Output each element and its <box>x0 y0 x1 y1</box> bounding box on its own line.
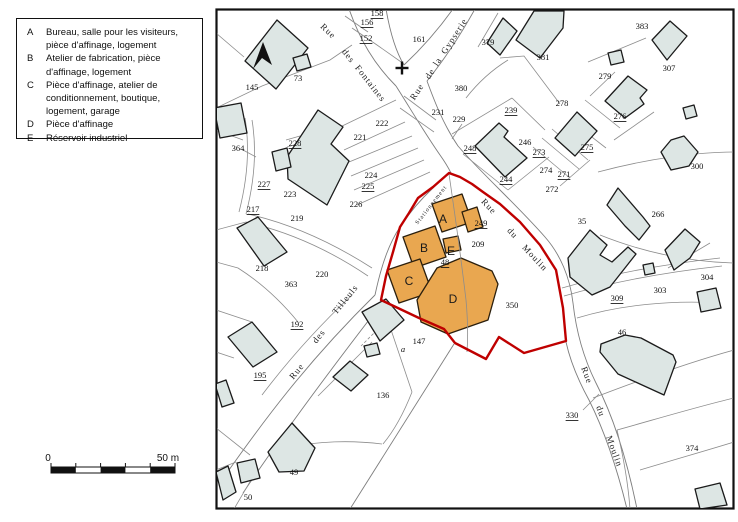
parcel-number: 222 <box>376 118 389 128</box>
parcel-number: 246 <box>519 137 532 147</box>
parcel-number: 217 <box>247 204 260 214</box>
parcel-number: 374 <box>686 443 700 453</box>
parcel-number: 49 <box>290 467 299 477</box>
legend-label: Bureau, salle pour les visiteurs, pièce … <box>46 26 196 52</box>
parcel-number: 229 <box>453 114 466 124</box>
parcel-number: 350 <box>506 300 519 310</box>
parcel-number: 248 <box>464 143 477 153</box>
legend-label: Pièce d'affinage <box>46 118 196 131</box>
parcel-number: 220 <box>316 269 329 279</box>
parcel-number: 383 <box>636 21 649 31</box>
parcel-number: 303 <box>654 285 667 295</box>
parcel-number: 279 <box>599 71 612 81</box>
parcel-number: 239 <box>505 105 518 115</box>
building-letter: E <box>447 244 455 258</box>
parcel-number: 225 <box>362 181 375 191</box>
legend-key: C <box>27 79 46 119</box>
parcel-number: 147 <box>413 336 426 346</box>
parcel-number: 380 <box>455 83 468 93</box>
parcel-number: 192 <box>291 319 304 329</box>
legend-key: A <box>27 26 46 52</box>
parcel-number: 224 <box>365 170 379 180</box>
parcel-number: 266 <box>652 209 665 219</box>
parcel-number: 272 <box>546 184 559 194</box>
parcel-number: 223 <box>284 189 297 199</box>
legend-item-a: A Bureau, salle pour les visiteurs, pièc… <box>27 26 196 52</box>
parcel-number: 73 <box>294 73 303 83</box>
parcel-number: 364 <box>232 143 246 153</box>
legend-item-e: E Réservoir industriel <box>27 132 196 145</box>
scale-bar: 0 50 m <box>45 453 179 473</box>
parcel-number: 309 <box>611 293 624 303</box>
parcel-number: 152 <box>360 33 373 43</box>
building-letter: B <box>420 241 428 255</box>
parcel-number: 228 <box>289 138 302 148</box>
parcel-number: 271 <box>558 169 571 179</box>
building-letter: A <box>439 212 447 226</box>
parcel-number: 226 <box>350 199 363 209</box>
legend-key: E <box>27 132 46 145</box>
parcel-number: 304 <box>701 272 715 282</box>
parcel-number: 273 <box>533 147 546 157</box>
cadastral-map-page: RuedesFontainesRuedelaGypserieRueduMouli… <box>0 0 738 522</box>
building-letter: D <box>449 292 458 306</box>
parcel-number: 278 <box>556 98 569 108</box>
parcel-number: 276 <box>614 111 627 121</box>
parcel-number: 244 <box>500 174 514 184</box>
parcel-number: 249 <box>475 218 488 228</box>
parcel-number: 50 <box>244 492 253 502</box>
parcel-number: 46 <box>618 327 627 337</box>
building-letter: C <box>405 274 414 288</box>
parcel-number: 307 <box>663 63 676 73</box>
legend-key: D <box>27 118 46 131</box>
parcel-number: 48 <box>441 257 450 267</box>
legend-item-c: C Pièce d'affinage, atelier de condition… <box>27 79 196 119</box>
parcel-number: 145 <box>246 82 259 92</box>
parcel-number: 274 <box>540 165 554 175</box>
parcel-number: 35 <box>578 216 587 226</box>
parcel-number: 156 <box>361 17 374 27</box>
legend-item-b: B Atelier de fabrication, pièce d'affina… <box>27 52 196 78</box>
parcel-number: 300 <box>691 161 704 171</box>
parcel-number: 330 <box>566 410 579 420</box>
parcel-number: 221 <box>354 132 367 142</box>
parcel-number: 363 <box>285 279 298 289</box>
parcel-number: a <box>401 344 405 354</box>
legend-item-d: D Pièce d'affinage <box>27 118 196 131</box>
parcel-number: 219 <box>291 213 304 223</box>
parcel-number: 218 <box>256 263 269 273</box>
parcel-number: 231 <box>432 107 445 117</box>
legend-label: Réservoir industriel <box>46 132 196 145</box>
parcel-number: 381 <box>537 52 550 62</box>
legend-label: Pièce d'affinage, atelier de conditionne… <box>46 79 196 119</box>
parcel-number: 209 <box>472 239 485 249</box>
parcel-number: 227 <box>258 179 271 189</box>
scale-end-label: 50 m <box>157 453 179 464</box>
legend-box: A Bureau, salle pour les visiteurs, pièc… <box>16 18 203 139</box>
scale-start-label: 0 <box>45 453 51 464</box>
parcel-number: 275 <box>581 142 594 152</box>
parcel-number: 379 <box>482 37 495 47</box>
parcel-number: 161 <box>413 34 426 44</box>
legend-key: B <box>27 52 46 78</box>
legend-label: Atelier de fabrication, pièce d'affinage… <box>46 52 196 78</box>
parcel-number: 195 <box>254 370 267 380</box>
parcel-number: 136 <box>377 390 390 400</box>
